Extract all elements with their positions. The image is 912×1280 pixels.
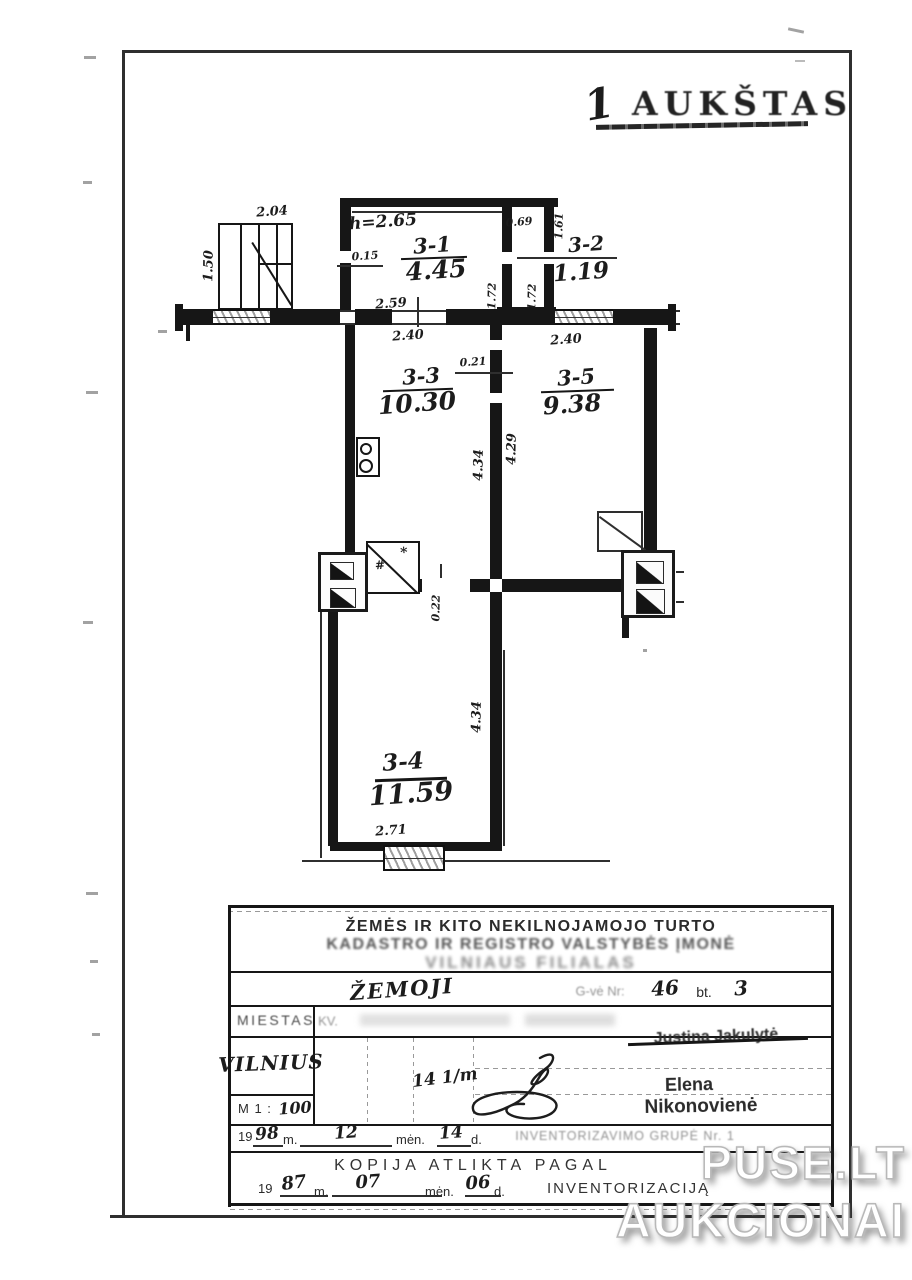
dim-tick [440,564,442,578]
dim-label: 0.15 [351,249,379,264]
window [213,309,270,325]
flat-number-value: 3 [733,976,749,1001]
dim-label: 2.40 [550,331,583,348]
burner-icon [360,443,372,455]
wall [490,325,502,340]
room-id: 3-3 [401,362,441,390]
floor-title-underline [596,121,808,130]
wall [502,207,512,252]
wall [490,592,502,846]
stove-tile-icon [636,589,665,614]
dim-label: 4.29 [504,433,520,465]
closet-hash-mark: # [374,558,385,573]
stove-tile-icon [330,588,356,608]
org-name-line2: KADASTRO IR REGISTRO VALSTYBĖS ĮMONĖ [326,936,735,954]
scanned-floor-plan-page: 1 AUKŠTAS # * [0,0,912,1280]
house-number-value: 46 [650,975,679,1001]
room-area: 9.38 [542,387,602,420]
wall-stub [186,325,190,341]
dim-tick [676,571,684,573]
dim-label: 4.34 [469,701,485,733]
blank-underline [300,1145,392,1147]
date1-men-label: mėn. [396,1132,425,1147]
blank-underline [280,1195,328,1197]
dim-tick [676,601,684,603]
scan-speck [86,892,98,895]
blank-underline [465,1195,501,1197]
date1-m-label: m. [283,1132,297,1147]
scan-speck [86,391,98,394]
date1-prefix: 19 [238,1129,252,1144]
kv-label: KV. [318,1014,338,1029]
watermark-line1: PUSE.LT [701,1136,906,1190]
wall [490,403,502,579]
page-border-left [122,50,125,1217]
room-area: 10.30 [377,386,457,420]
room-area: 11.59 [368,776,455,813]
city-label: MIESTAS [237,1012,315,1028]
dim-label: 1.72 [485,282,498,309]
wall [613,309,672,325]
wall [340,198,558,207]
signature-icon [462,1048,587,1126]
outer-wall-line [302,860,610,862]
titleblock-border [228,905,834,908]
scan-speck [788,27,804,33]
floor-number: 1 [580,77,617,130]
stove-tile-icon [636,561,664,584]
titleblock-cell-line [367,1038,368,1124]
floor-title: AUKŠTAS [632,84,853,123]
wall [446,309,555,325]
dim-line [455,372,513,374]
wall [644,328,657,552]
date1-year: 98 [254,1123,279,1145]
dim-label: 0.22 [429,594,442,621]
crossed-out-name: Justina Jakulytė [653,1026,778,1048]
dim-label: 1.50 [201,250,217,282]
dim-label: 2.71 [375,822,408,839]
scan-smudge [360,1014,510,1026]
dim-label: 1.72 [525,283,538,310]
blank-underline [253,1145,283,1147]
scan-speck [84,56,96,59]
scan-speck [83,621,93,624]
stove-tile-icon [330,562,354,580]
page-border-top [122,50,852,53]
dim-tick [417,297,419,327]
window [383,845,445,871]
room-id: 3-4 [381,747,424,777]
window [555,309,613,325]
room-area: 4.45 [405,253,468,286]
stamp-name-line1: Elena [665,1074,713,1096]
date2-prefix: 19 [258,1181,272,1196]
dim-label: 4.34 [471,449,487,481]
scan-smudge [525,1014,615,1026]
titleblock-rule [228,1094,315,1096]
stairs [218,223,293,310]
wall [470,579,490,592]
scale-value: 100 [278,1097,313,1118]
page-border-right [849,50,852,1217]
date2-day: 06 [465,1172,491,1195]
room-id: 3-5 [556,363,596,391]
scan-speck [795,60,805,62]
scan-speck [90,960,98,963]
dim-label: 2.59 [375,295,408,312]
date2-year: 87 [280,1171,307,1195]
blank-underline [437,1145,471,1147]
closet-star-mark: * [400,545,408,561]
wall [270,309,340,325]
wall [340,263,351,312]
burner-icon [359,459,373,473]
wall-end-cap [175,304,183,331]
dim-label: 2.40 [392,327,425,344]
scan-speck [158,330,167,333]
date1-month: 12 [333,1122,358,1144]
wall-stub [622,618,629,638]
blank-underline [332,1195,442,1197]
scan-speck [643,649,647,652]
room-area: 1.19 [552,257,610,288]
dim-label: 0.21 [459,355,487,370]
outer-wall-line [320,596,322,858]
wall [345,325,355,579]
dim-label: 0.69 [505,215,533,230]
scale-label: M 1 : [238,1101,272,1116]
dim-label: h=2.65 [348,210,417,235]
stair-tread [240,223,242,310]
watermark-line2: AUKCIONAI [616,1194,906,1249]
stair-tread [258,223,260,310]
stair-tread [276,223,278,310]
room-id: 3-2 [567,231,605,257]
scan-speck [92,1033,100,1036]
date1-d-label: d. [471,1132,482,1147]
scan-speck [83,181,92,184]
city-value: VILNIUS [218,1049,324,1077]
wall [328,592,338,846]
street-number-label: G-vė Nr: [575,984,624,999]
wall [502,264,512,310]
org-name-line3: VILNIAUS FILIALAS [425,953,637,973]
stamp-name-line2: Nikonovienė [644,1095,757,1119]
flat-label: bt. [696,984,712,1000]
dim-line [337,265,383,267]
dim-label: 2.04 [256,203,289,220]
date1-day: 14 [438,1122,463,1144]
wall-end-cap [668,304,676,331]
titleblock-rule [228,1005,834,1007]
outer-wall-line [503,650,505,846]
street-name-value: ŽEMOJI [349,973,455,1005]
date2-month: 07 [355,1171,381,1194]
org-name-line1: ŽEMĖS IR KITO NEKILNOJAMOJO TURTO [346,918,717,936]
dim-label: 1.61 [552,212,565,239]
wall [183,309,213,325]
wall [502,579,623,592]
titleblock-border [228,911,834,912]
